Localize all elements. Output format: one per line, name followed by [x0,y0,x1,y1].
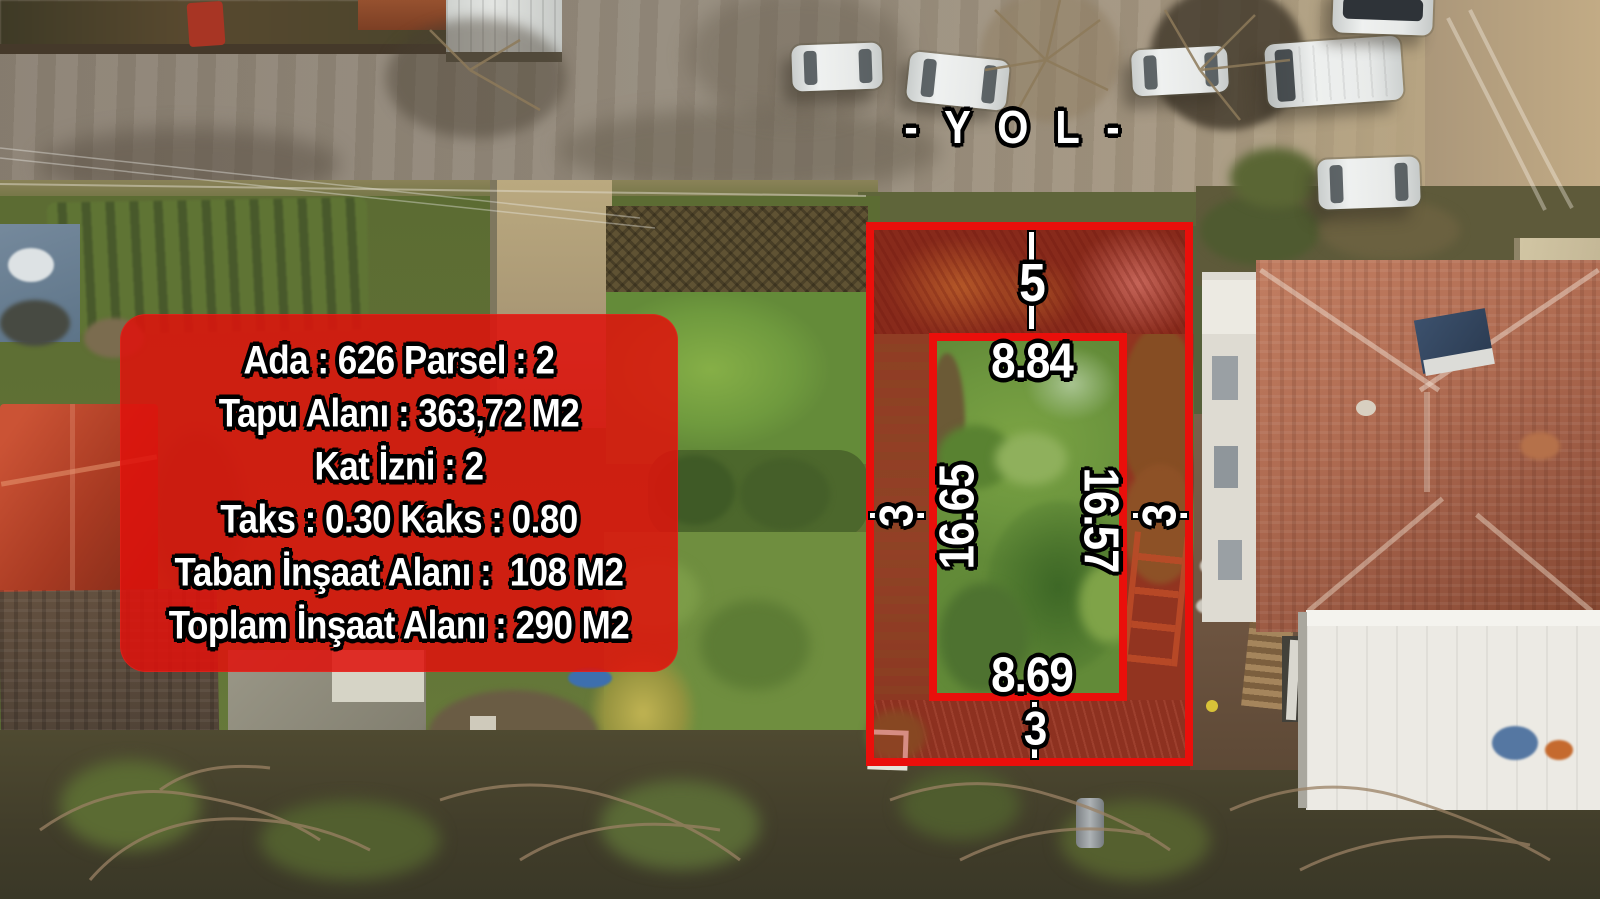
bush [1320,200,1460,260]
parked-car [1131,46,1229,97]
bush [1230,148,1320,208]
roof-patch [1520,432,1560,460]
stored-items [0,300,70,346]
blue-tarp-small [1492,726,1538,760]
roof-vent [1356,400,1376,416]
aerial-parcel-photo: 5 8.84 3 16.65 16.57 3 8.69 3 - Y O L - … [0,0,1600,899]
wooden-ladder [1126,531,1191,666]
car-rear-window [858,49,872,83]
light-patch [995,433,1067,485]
dimension-label-inner-bottom: 8.69 [991,651,1073,700]
scrub-green [260,800,440,880]
balcony [1202,280,1262,334]
road-label: - Y O L - [904,105,1127,151]
vine-canopy-texture [606,206,868,296]
car-windshield [1143,55,1158,90]
car-windshield [1329,165,1343,203]
info-line-taban-insaat: Taban İnşaat Alanı : 108 M2 [120,543,678,603]
window [1218,540,1242,580]
tree-shadow [386,18,566,138]
red-vehicle [187,1,226,47]
info-line-ada-parsel: Ada : 626 Parsel : 2 [120,331,678,391]
parked-suv [1332,0,1434,36]
dimension-label-outer-left: 3 [873,505,920,527]
white-marker-square [867,729,908,770]
flat-roof-seams [1306,610,1600,810]
dimension-label-inner-right: 16.57 [1075,467,1124,572]
info-line-taks-kaks: Taks : 0.30 Kaks : 0.80 [120,490,678,550]
junk-white [470,716,496,730]
dimension-label-outer-bottom: 3 [1024,705,1046,752]
scrub-green [900,770,1020,840]
fence-line [0,44,452,54]
dimension-label-inner-left: 16.65 [933,464,982,569]
tarp-highlight [8,248,54,282]
car-rear-window [1394,163,1408,201]
roof-ridge [1424,392,1430,492]
window [1214,446,1238,488]
grass-verge [858,192,1208,226]
van-roof-ribs [1298,40,1398,103]
info-line-tapu-alani: Tapu Alanı : 363,72 M2 [120,384,678,444]
yellow-item [1206,700,1218,712]
car-windshield [920,58,937,97]
garden-patch [700,600,810,690]
flat-roof-highlight [1306,610,1600,626]
orange-item [1545,740,1573,760]
info-line-toplam-insaat: Toplam İnşaat Alanı : 290 M2 [120,596,678,656]
roof-ridge [70,404,75,604]
parked-car [791,42,883,91]
car-windshield [803,51,817,85]
car-rear-window [981,65,998,104]
parcel-info-box: Ada : 626 Parsel : 2 Tapu Alanı : 363,72… [120,314,678,672]
dimension-label-top: 5 [1019,257,1045,311]
scrub-green [60,760,200,850]
dimension-label-inner-top: 8.84 [991,337,1073,386]
dimension-label-outer-right: 3 [1136,505,1183,527]
parked-car [1317,156,1421,210]
suv-sunroof [1343,0,1424,21]
gray-barrel [1076,798,1104,848]
window [1212,356,1238,400]
hedge-bush [740,458,830,530]
scrub-green [600,780,760,870]
van-windshield [1274,49,1296,102]
info-line-kat-izni: Kat İzni : 2 [120,437,678,497]
flat-roof-shadow-edge [1298,612,1307,808]
car-rear-window [1204,52,1219,87]
parked-van [1264,35,1404,108]
